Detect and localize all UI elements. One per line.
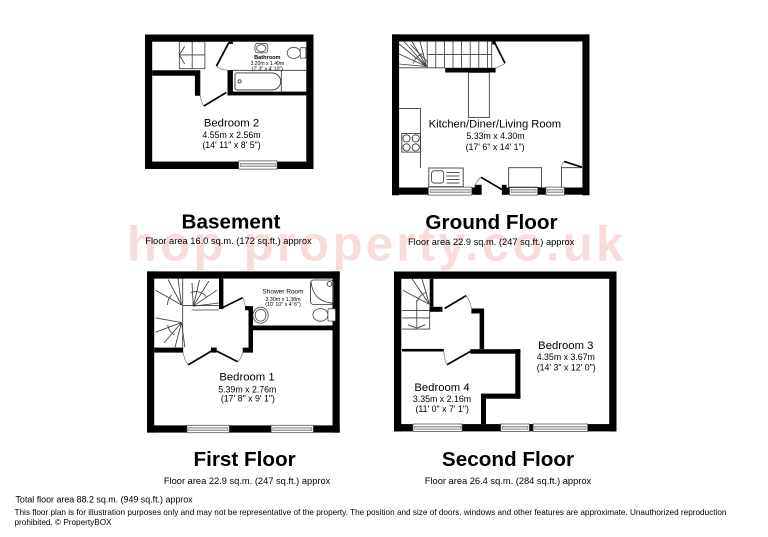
svg-text:Bathroom: Bathroom bbox=[254, 55, 280, 61]
svg-text:4.55m x 2.56m: 4.55m x 2.56m bbox=[202, 130, 260, 140]
svg-text:(14' 11" x 8' 5"): (14' 11" x 8' 5") bbox=[202, 140, 260, 150]
svg-text:Floor area 26.4 sq.m. (284 sq.: Floor area 26.4 sq.m. (284 sq.ft.) appro… bbox=[425, 476, 592, 486]
svg-text:prohibited. © PropertyBOX: prohibited. © PropertyBOX bbox=[15, 518, 113, 527]
svg-text:Kitchen/Diner/Living Room: Kitchen/Diner/Living Room bbox=[429, 119, 561, 131]
svg-text:(10' 10" x 4' 6"): (10' 10" x 4' 6") bbox=[265, 302, 301, 308]
svg-text:Second Floor: Second Floor bbox=[442, 448, 574, 471]
svg-text:(11' 0" x 7' 1"): (11' 0" x 7' 1") bbox=[415, 404, 469, 414]
svg-text:(14' 3" x 12' 0"): (14' 3" x 12' 0") bbox=[537, 362, 596, 372]
svg-text:Bedroom 4: Bedroom 4 bbox=[414, 382, 469, 394]
svg-text:5.33m x 4.30m: 5.33m x 4.30m bbox=[466, 131, 524, 141]
svg-text:Bedroom 1: Bedroom 1 bbox=[219, 372, 274, 384]
svg-text:Floor area 22.9 sq.m. (247 sq.: Floor area 22.9 sq.m. (247 sq.ft.) appro… bbox=[164, 476, 331, 486]
svg-text:(17' 8" x 9' 1"): (17' 8" x 9' 1") bbox=[221, 394, 275, 404]
svg-text:Floor area 16.0 sq.m. (172 sq.: Floor area 16.0 sq.m. (172 sq.ft.) appro… bbox=[145, 236, 312, 246]
svg-text:(17' 6" x 14' 1"): (17' 6" x 14' 1") bbox=[466, 142, 525, 152]
svg-text:Basement: Basement bbox=[182, 211, 281, 234]
svg-text:3.35m x 2.16m: 3.35m x 2.16m bbox=[413, 394, 471, 404]
svg-text:This floor plan is for illustr: This floor plan is for illustration purp… bbox=[15, 508, 727, 517]
svg-text:Floor area 22.9 sq.m. (247 sq.: Floor area 22.9 sq.m. (247 sq.ft.) appro… bbox=[408, 237, 575, 247]
svg-text:Total floor area 88.2 sq.m. (9: Total floor area 88.2 sq.m. (949 sq.ft.)… bbox=[16, 495, 194, 505]
svg-text:4.35m x 3.67m: 4.35m x 3.67m bbox=[537, 352, 595, 362]
svg-text:First Floor: First Floor bbox=[193, 448, 295, 471]
svg-text:Bedroom 3: Bedroom 3 bbox=[538, 340, 593, 352]
svg-text:Shower Room: Shower Room bbox=[262, 289, 303, 296]
svg-text:Bedroom 2: Bedroom 2 bbox=[204, 117, 259, 129]
svg-text:Ground Floor: Ground Floor bbox=[425, 211, 557, 234]
svg-text:(7' 3" x 4' 10"): (7' 3" x 4' 10") bbox=[252, 66, 284, 72]
